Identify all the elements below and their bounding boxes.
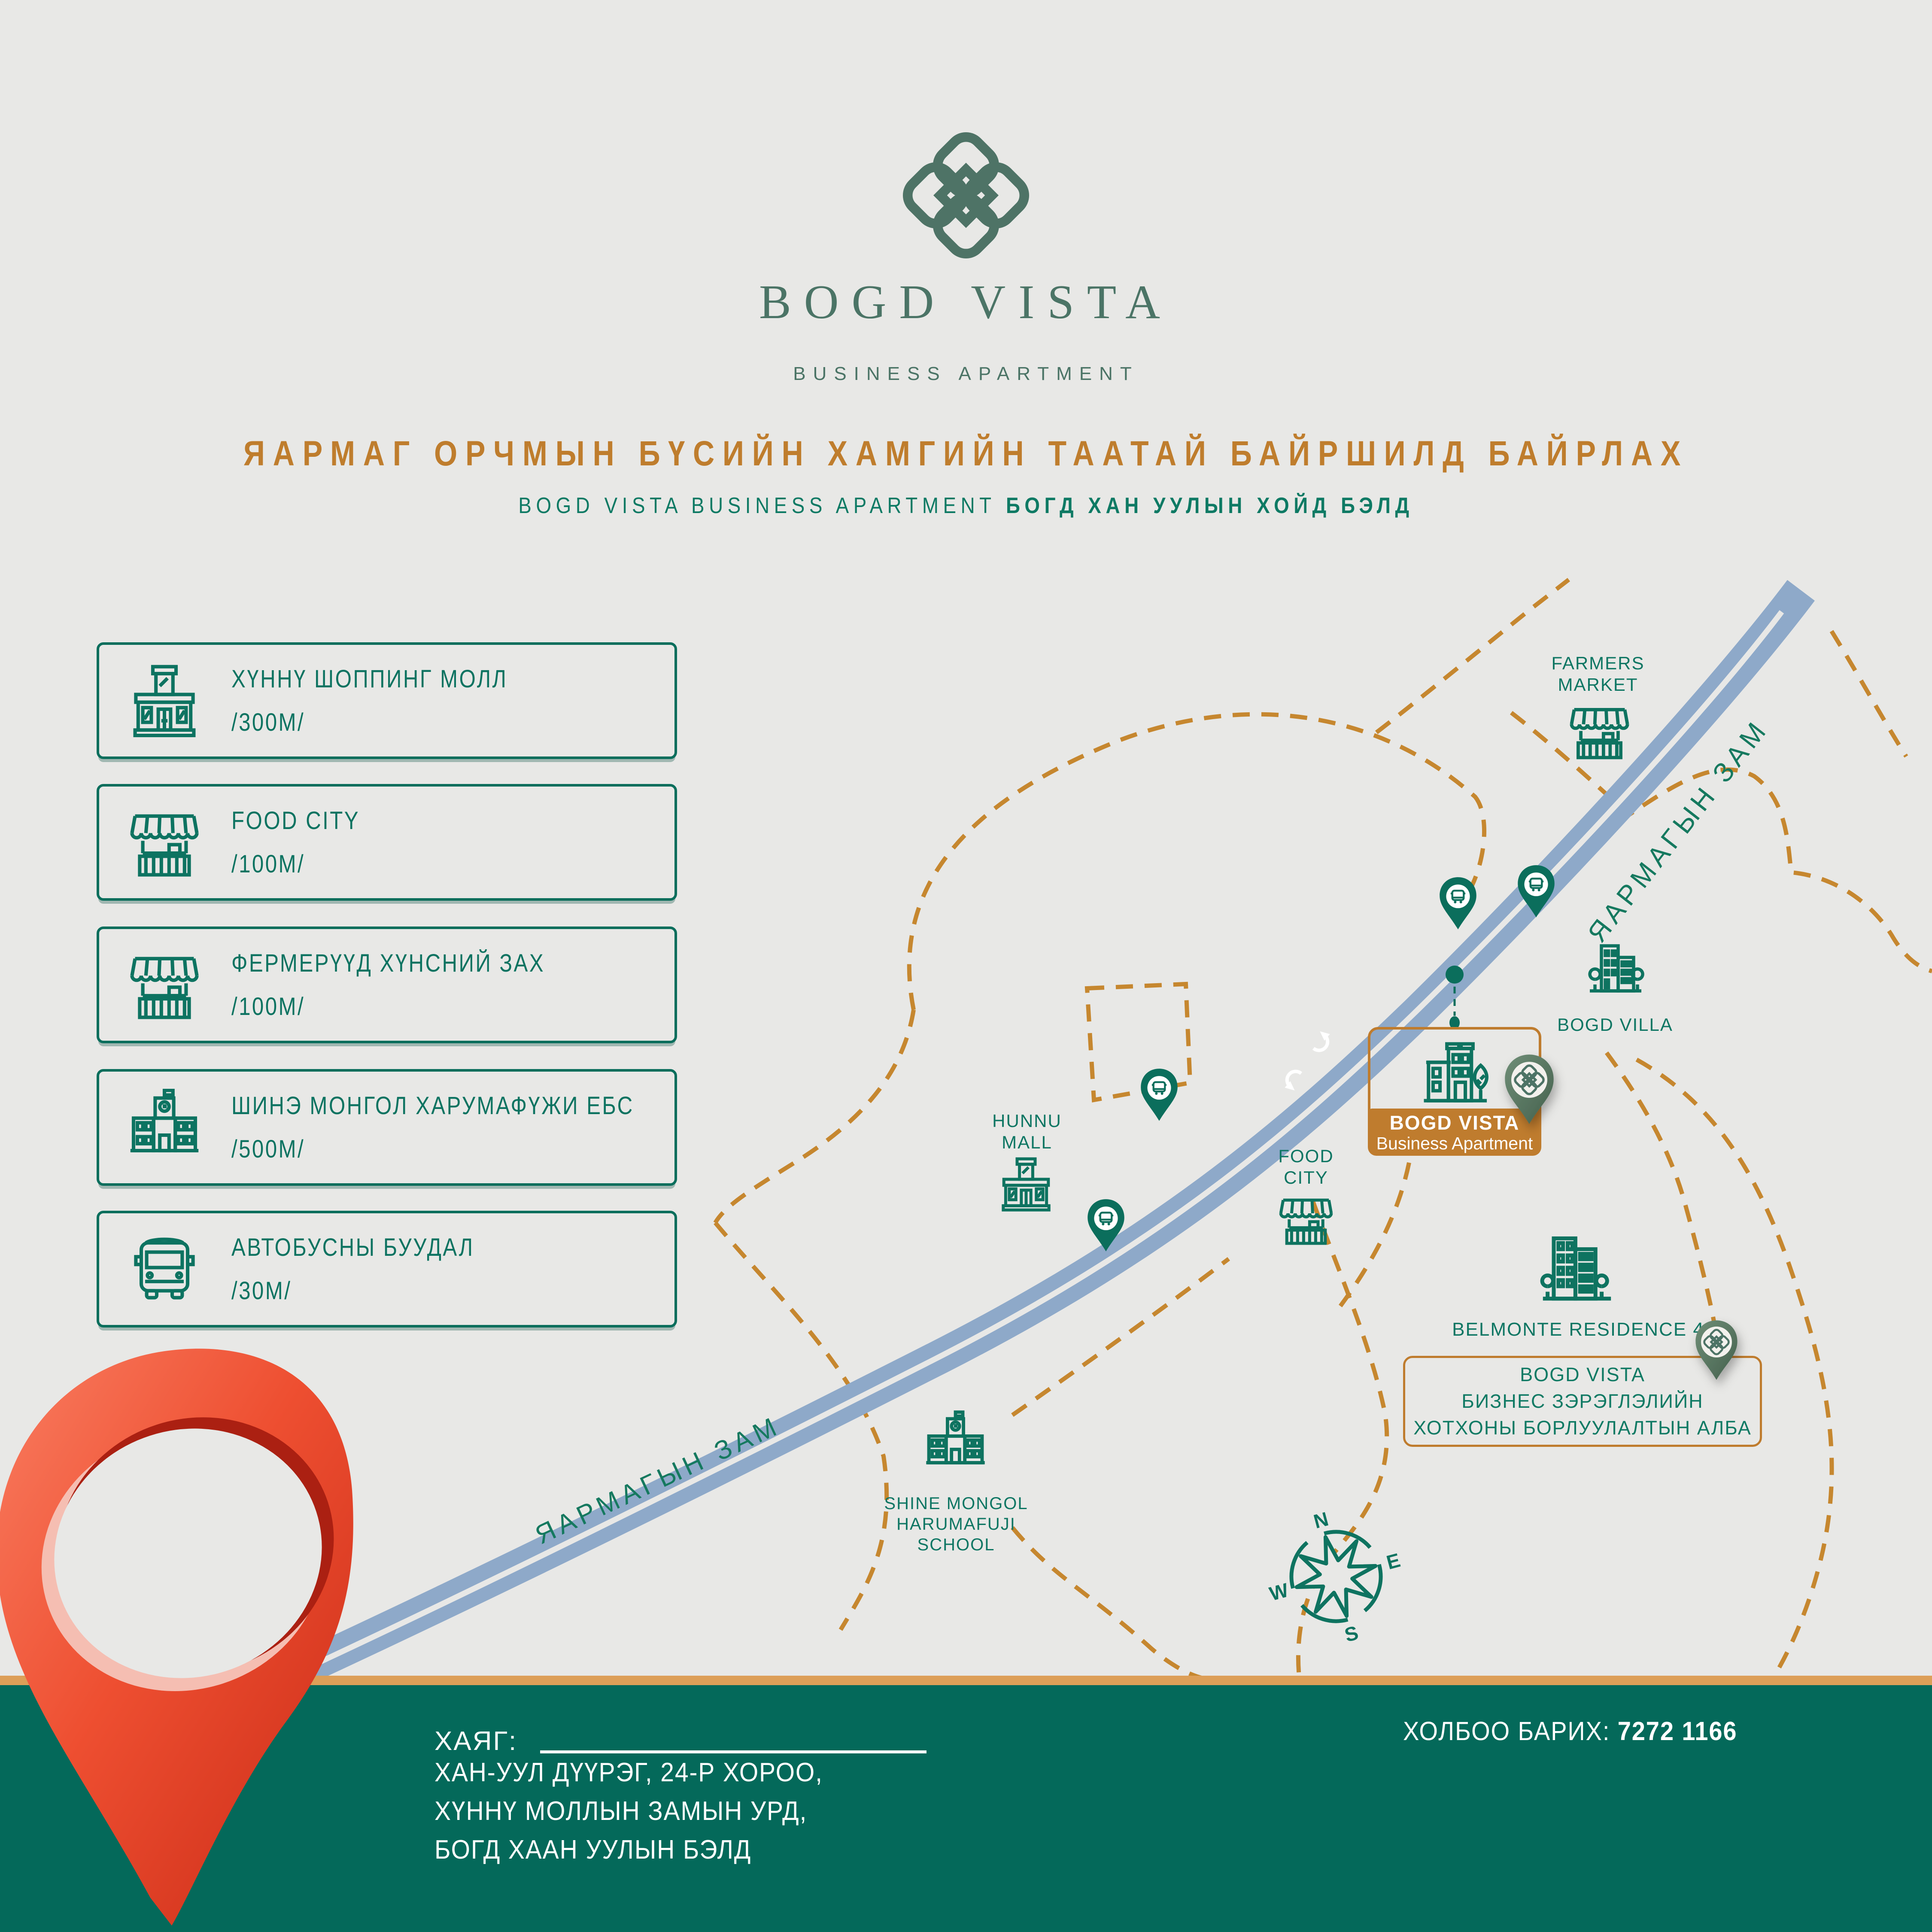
office-line: ХОТХОНЫ БОРЛУУЛАЛТЫН АЛБА [1413, 1415, 1752, 1441]
compass-e: E [1384, 1549, 1403, 1574]
office-line: БИЗНЕС ЗЭРЭГЛЭЛИЙН [1461, 1388, 1703, 1415]
amenity-box-school: ШИНЭ МОНГОЛ ХАРУМАФҮЖИ ЕБС /500М/ [97, 1069, 677, 1186]
compass-icon: N E S W [1252, 1492, 1418, 1662]
label-farmers-market: FARMERSMARKET [1551, 653, 1644, 696]
bogd-vista-card: BOGD VISTA Business Apartment [1368, 1027, 1541, 1156]
amenity-box-bus: АВТОБУСНЫ БУУДАЛ /30М/ [97, 1211, 677, 1327]
compass-n: N [1311, 1507, 1331, 1533]
poster: N E S W [0, 0, 1932, 1932]
amenity-label: ХҮННҮ ШОППИНГ МОЛЛ [231, 665, 507, 693]
market-icon [1281, 1200, 1331, 1243]
bus-icon [126, 1230, 203, 1308]
page-headline: ЯАРМАГ ОРЧМЫН БҮСИЙН ХАМГИЙН ТААТАЙ БАЙР… [116, 434, 1816, 474]
endless-knot-icon [901, 131, 1031, 261]
contact-label: ХОЛБОО БАРИХ: [1403, 1716, 1610, 1746]
subheadline-latin: BOGD VISTA BUSINESS APARTMENT [518, 493, 996, 518]
contact: ХОЛБОО БАРИХ: 7272 1166 [1403, 1716, 1766, 1746]
address-underline [540, 1750, 927, 1753]
subheadline-bold: БОГД ХАН УУЛЫН ХОЙД БЭЛД [1006, 493, 1414, 518]
u-turn-arrow-icon [1281, 1068, 1306, 1094]
u-turn-arrow-icon [1309, 1028, 1334, 1054]
card-subtitle: Business Apartment [1368, 1133, 1541, 1153]
amenity-box-foodcity: FOOD CITY /100М/ [97, 784, 677, 901]
compass-s: S [1342, 1621, 1361, 1646]
label-hunnu-mall: HUNNUMALL [992, 1110, 1062, 1153]
amenity-distance: /500М/ [231, 1135, 305, 1163]
footer: ХАЯГ: ХАН-УУЛ ДҮҮРЭГ, 24-Р ХОРОО, ХҮННҮ … [0, 1685, 1932, 1932]
mall-icon [1003, 1159, 1049, 1210]
amenity-label: ШИНЭ МОНГОЛ ХАРУМАФҮЖИ ЕБС [231, 1091, 634, 1120]
amenity-box-farmers: ФЕРМЕРҮҮД ХҮНСНИЙ ЗАХ /100М/ [97, 927, 677, 1043]
amenity-distance: /30М/ [231, 1276, 292, 1305]
address-label: ХАЯГ: [434, 1726, 517, 1756]
label-school: SHINE MONGOLHARUMAFUJISCHOOL [884, 1493, 1028, 1555]
address-line: ХАН-УУЛ ДҮҮРЭГ, 24-Р ХОРОО, [434, 1757, 823, 1788]
villa-icon [1590, 946, 1643, 991]
card-title: BOGD VISTA [1368, 1112, 1541, 1133]
label-food-city: FOODCITY [1278, 1145, 1334, 1188]
brand-name: BOGD VISTA [759, 275, 1173, 330]
apartment-icon [1416, 1035, 1493, 1107]
footer-accent-strip [0, 1676, 1932, 1685]
bus-stop-pin-icon [1440, 877, 1476, 930]
amenity-label: АВТОБУСНЫ БУУДАЛ [231, 1233, 474, 1262]
label-bogd-villa: BOGD VILLA [1557, 1014, 1673, 1036]
market-icon [126, 804, 203, 881]
sales-office-box: BOGD VISTA БИЗНЕС ЗЭРЭГЛЭЛИЙН ХОТХОНЫ БО… [1403, 1356, 1762, 1447]
amenity-distance: /100М/ [231, 850, 305, 878]
office-line: BOGD VISTA [1520, 1361, 1645, 1388]
market-icon [126, 946, 203, 1024]
school-icon [126, 1089, 203, 1166]
amenity-label: FOOD CITY [231, 806, 360, 835]
address-line: БОГД ХААН УУЛЫН БЭЛД [434, 1835, 751, 1865]
bus-stop-pin-icon [1141, 1069, 1178, 1121]
mall-icon [126, 662, 203, 739]
school-icon [926, 1412, 984, 1463]
amenity-box-mall: ХҮННҮ ШОППИНГ МОЛЛ /300М/ [97, 642, 677, 759]
compass-w: W [1267, 1579, 1291, 1605]
residence-icon [1542, 1238, 1611, 1298]
brand-tagline: BUSINESS APARTMENT [793, 363, 1139, 385]
market-icon [1571, 710, 1627, 758]
amenity-distance: /100М/ [231, 992, 305, 1021]
contact-phone: 7272 1166 [1618, 1716, 1738, 1746]
page-subheadline: BOGD VISTA BUSINESS APARTMENT БОГД ХАН У… [457, 493, 1475, 519]
card-title-strip: BOGD VISTA Business Apartment [1368, 1109, 1541, 1156]
label-belmonte: BELMONTE RESIDENCE 4 [1452, 1319, 1704, 1340]
address-line: ХҮННҮ МОЛЛЫН ЗАМЫН УРД, [434, 1796, 807, 1826]
amenity-distance: /300М/ [231, 708, 305, 737]
amenity-label: ФЕРМЕРҮҮД ХҮНСНИЙ ЗАХ [231, 949, 545, 978]
